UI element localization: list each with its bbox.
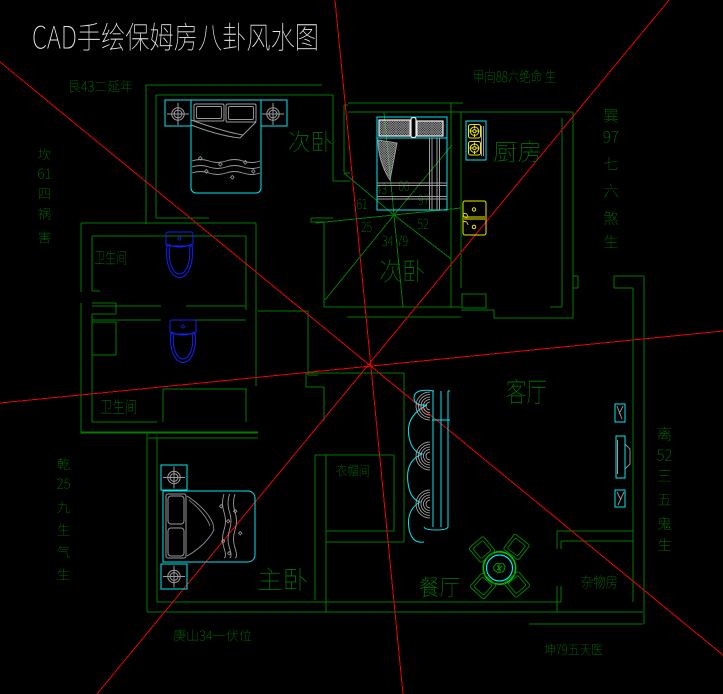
svg-text:34: 34 — [382, 231, 393, 251]
svg-text:61: 61 — [37, 163, 51, 183]
svg-text:主卧: 主卧 — [257, 560, 308, 597]
svg-text:卫生间: 卫生间 — [100, 393, 137, 418]
svg-text:生: 生 — [57, 564, 71, 584]
svg-text:衣帽间: 衣帽间 — [336, 460, 370, 480]
svg-text:九: 九 — [57, 496, 71, 516]
svg-text:七: 七 — [603, 153, 619, 175]
svg-text:甲向88六绝命 生: 甲向88六绝命 生 — [473, 66, 556, 87]
svg-text:六: 六 — [603, 180, 619, 202]
svg-text:煞: 煞 — [603, 207, 619, 229]
svg-text:客厅: 客厅 — [506, 371, 547, 411]
svg-text:气: 气 — [57, 541, 71, 561]
svg-text:坎: 坎 — [38, 144, 52, 164]
svg-text:61: 61 — [357, 194, 368, 214]
svg-text:97: 97 — [603, 126, 619, 148]
svg-text:25: 25 — [361, 217, 372, 237]
svg-text:餐厅: 餐厅 — [419, 569, 460, 603]
svg-text:离: 离 — [657, 424, 672, 445]
svg-text:次卧: 次卧 — [379, 252, 425, 289]
svg-text:艮43二延年: 艮43二延年 — [68, 77, 133, 97]
svg-text:52: 52 — [657, 445, 673, 466]
svg-text:巽: 巽 — [603, 105, 619, 127]
svg-text:祸: 祸 — [38, 203, 52, 223]
svg-text:庚山34一伏位: 庚山34一伏位 — [173, 625, 252, 645]
svg-text:四: 四 — [38, 183, 52, 203]
svg-text:生: 生 — [57, 519, 71, 539]
svg-text:生: 生 — [603, 231, 619, 253]
svg-text:79: 79 — [397, 231, 408, 251]
svg-text:生: 生 — [657, 535, 672, 556]
svg-text:CAD手绘保姆房八卦风水图: CAD手绘保姆房八卦风水图 — [32, 13, 319, 58]
svg-text:害: 害 — [38, 227, 52, 247]
svg-text:五: 五 — [657, 489, 672, 510]
svg-text:25: 25 — [56, 473, 70, 493]
svg-text:三: 三 — [657, 466, 672, 487]
svg-text:杂物房: 杂物房 — [581, 572, 618, 593]
svg-text:次卧: 次卧 — [288, 123, 333, 158]
svg-text:厨房: 厨房 — [493, 133, 542, 168]
svg-text:乾: 乾 — [57, 453, 71, 473]
svg-text:坤79五天医: 坤79五天医 — [544, 639, 603, 659]
svg-text:卫生间: 卫生间 — [94, 245, 127, 269]
svg-text:97: 97 — [418, 190, 429, 210]
svg-text:鬼: 鬼 — [657, 513, 672, 534]
svg-text:52: 52 — [418, 214, 429, 234]
